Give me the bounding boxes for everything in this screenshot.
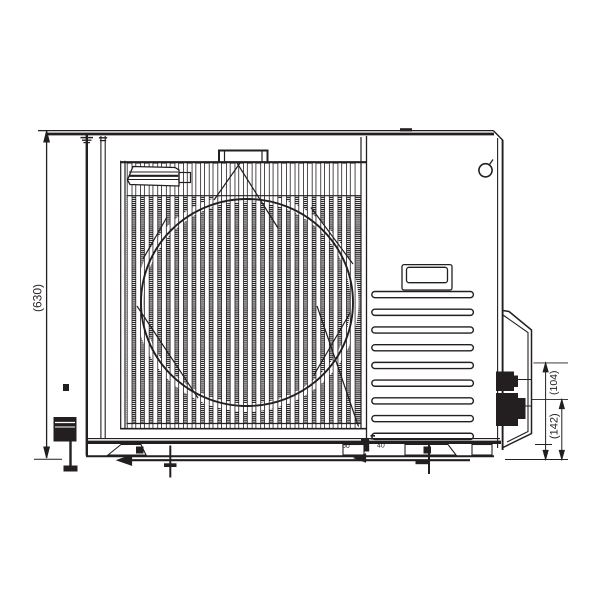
svg-text:(142): (142) — [549, 413, 561, 439]
svg-text:(104): (104) — [548, 370, 560, 395]
svg-text:60: 60 — [342, 443, 350, 450]
svg-text:(630): (630) — [31, 284, 45, 312]
svg-text:40: 40 — [377, 443, 385, 450]
